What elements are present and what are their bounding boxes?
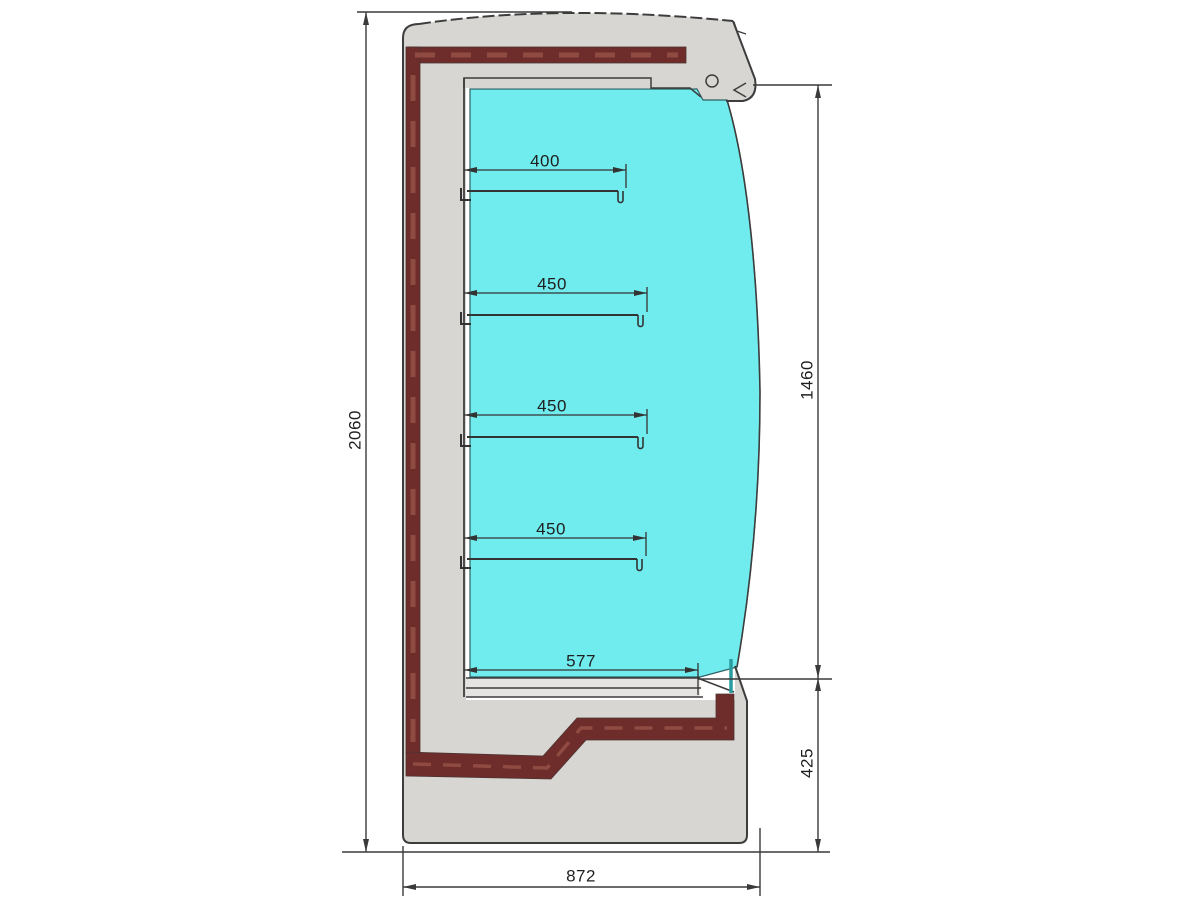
dim-label-bottom-deck: 577 (566, 653, 596, 670)
cabinet-section-drawing (0, 0, 1200, 900)
dim-label-shelf-3: 450 (537, 398, 567, 415)
dim-label-overall-height: 2060 (347, 410, 364, 450)
depth-arrow-left (403, 884, 416, 890)
lamp-fixture (706, 75, 718, 87)
deck-front-diagonal (700, 679, 734, 692)
opening-arrow-bottom (815, 665, 821, 678)
base-arrow-bottom (815, 839, 821, 852)
dim-label-shelf-2: 450 (537, 276, 567, 293)
dim-label-opening-height: 1460 (799, 360, 816, 400)
dim-label-shelf-1: 400 (530, 153, 560, 170)
technical-drawing-page: 400 450 450 450 577 872 2060 1460 425 (0, 0, 1200, 900)
height-arrow-bottom (363, 839, 369, 852)
depth-arrow-right (747, 884, 760, 890)
interior-air-volume (470, 89, 760, 677)
base-arrow-top (815, 678, 821, 691)
height-arrow-top (363, 12, 369, 25)
dim-label-base-height: 425 (799, 748, 816, 778)
opening-arrow-top (815, 85, 821, 98)
dim-label-shelf-4: 450 (536, 521, 566, 538)
dim-label-overall-depth: 872 (566, 868, 596, 885)
